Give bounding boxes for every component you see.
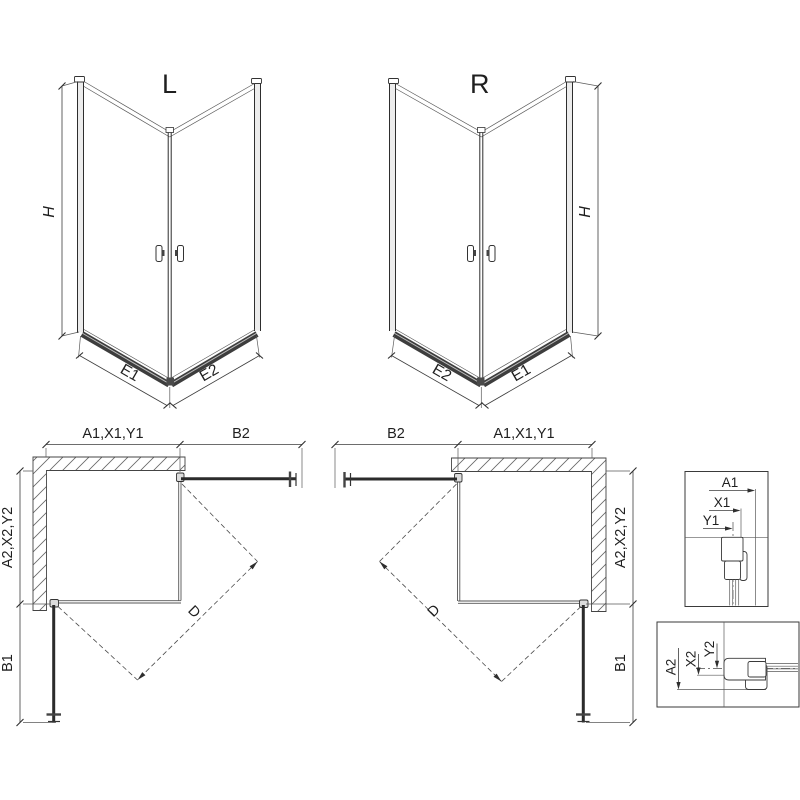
bottom-sill-highlight bbox=[394, 333, 569, 384]
dim-height: H bbox=[41, 82, 79, 340]
dim-b2-label: B2 bbox=[232, 426, 250, 442]
glass-panels bbox=[458, 476, 583, 603]
wall-profile-section bbox=[722, 537, 748, 605]
dim-b2-label: B2 bbox=[387, 426, 405, 442]
plan-view-right: D B2 A1,X1,Y1 A2,X2,Y2 B1 bbox=[332, 426, 637, 726]
view-title: L bbox=[162, 69, 177, 99]
dim-a1x1y1-label: A1,X1,Y1 bbox=[82, 426, 143, 442]
drawing-sheet: L H bbox=[0, 0, 800, 800]
walls-hatched bbox=[33, 457, 185, 611]
left-profile-cap bbox=[389, 79, 399, 84]
dim-b1-label: B1 bbox=[613, 654, 629, 672]
detail-floor-profile: A2 X2 Y2 bbox=[657, 622, 799, 707]
sill-corner-connector bbox=[477, 378, 485, 386]
dim-x1: X1 bbox=[709, 495, 741, 513]
right-profile-cap bbox=[252, 79, 262, 84]
dim-a1-label: A1 bbox=[722, 475, 739, 490]
dim-x2: X2 bbox=[684, 651, 701, 675]
corner-cap bbox=[166, 128, 174, 133]
dim-a1: A1 bbox=[709, 475, 755, 493]
dim-d-label: D bbox=[425, 602, 444, 621]
right-wall-profile-fill bbox=[567, 81, 572, 333]
floor-profile-section bbox=[724, 658, 798, 689]
dim-left: A2,X2,Y2 B1 bbox=[0, 468, 56, 727]
dim-a2-label: A2 bbox=[664, 659, 679, 676]
dim-x1-label: X1 bbox=[714, 495, 731, 510]
dim-x2-label: X2 bbox=[684, 651, 699, 668]
corner-post bbox=[168, 131, 171, 380]
iso-view-left: L H bbox=[41, 69, 263, 409]
dim-d-label: D bbox=[184, 603, 203, 622]
door-handles bbox=[468, 246, 496, 262]
shower-enclosure-technical-drawing: L H bbox=[0, 0, 800, 800]
sill-corner-connector bbox=[167, 378, 175, 386]
dim-a2x2y2-label: A2,X2,Y2 bbox=[0, 507, 16, 568]
left-wall-profile-fill bbox=[390, 83, 395, 331]
dim-height-label: H bbox=[41, 206, 58, 218]
bottom-sill bbox=[82, 334, 257, 385]
corner-cap bbox=[478, 128, 486, 133]
corner-post bbox=[480, 131, 483, 380]
dim-diagonal: D bbox=[380, 484, 582, 682]
right-wall-profile-fill bbox=[255, 83, 260, 331]
bottom-sill-highlight bbox=[82, 333, 257, 384]
glass-panels bbox=[57, 476, 182, 604]
dim-y2-label: Y2 bbox=[702, 641, 717, 658]
dim-y2: Y2 bbox=[702, 641, 719, 669]
dim-height-label: H bbox=[577, 206, 594, 218]
right-profile-cap bbox=[566, 77, 576, 83]
dim-a2: A2 bbox=[664, 648, 681, 690]
door-handles bbox=[156, 246, 184, 262]
dim-a1x1y1-label: A1,X1,Y1 bbox=[493, 426, 554, 442]
dim-height: H bbox=[573, 82, 602, 340]
detail-wall-profile: A1 X1 Y1 bbox=[685, 472, 768, 607]
dim-a2x2y2-label: A2,X2,Y2 bbox=[613, 507, 629, 568]
dim-y1-label: Y1 bbox=[703, 513, 720, 528]
left-profile-cap bbox=[75, 77, 85, 83]
dim-b1-label: B1 bbox=[0, 654, 16, 672]
dim-diagonal: D bbox=[58, 484, 258, 680]
bottom-sill bbox=[394, 334, 569, 385]
walls-hatched bbox=[452, 458, 607, 612]
iso-view-right: R H E2 E1 bbox=[388, 69, 602, 409]
view-title: R bbox=[470, 69, 490, 99]
left-wall-profile-fill bbox=[78, 81, 83, 333]
dim-y1: Y1 bbox=[703, 513, 733, 531]
plan-view-left: D A1,X1,Y1 B2 A2,X2,Y2 B1 bbox=[0, 426, 306, 726]
